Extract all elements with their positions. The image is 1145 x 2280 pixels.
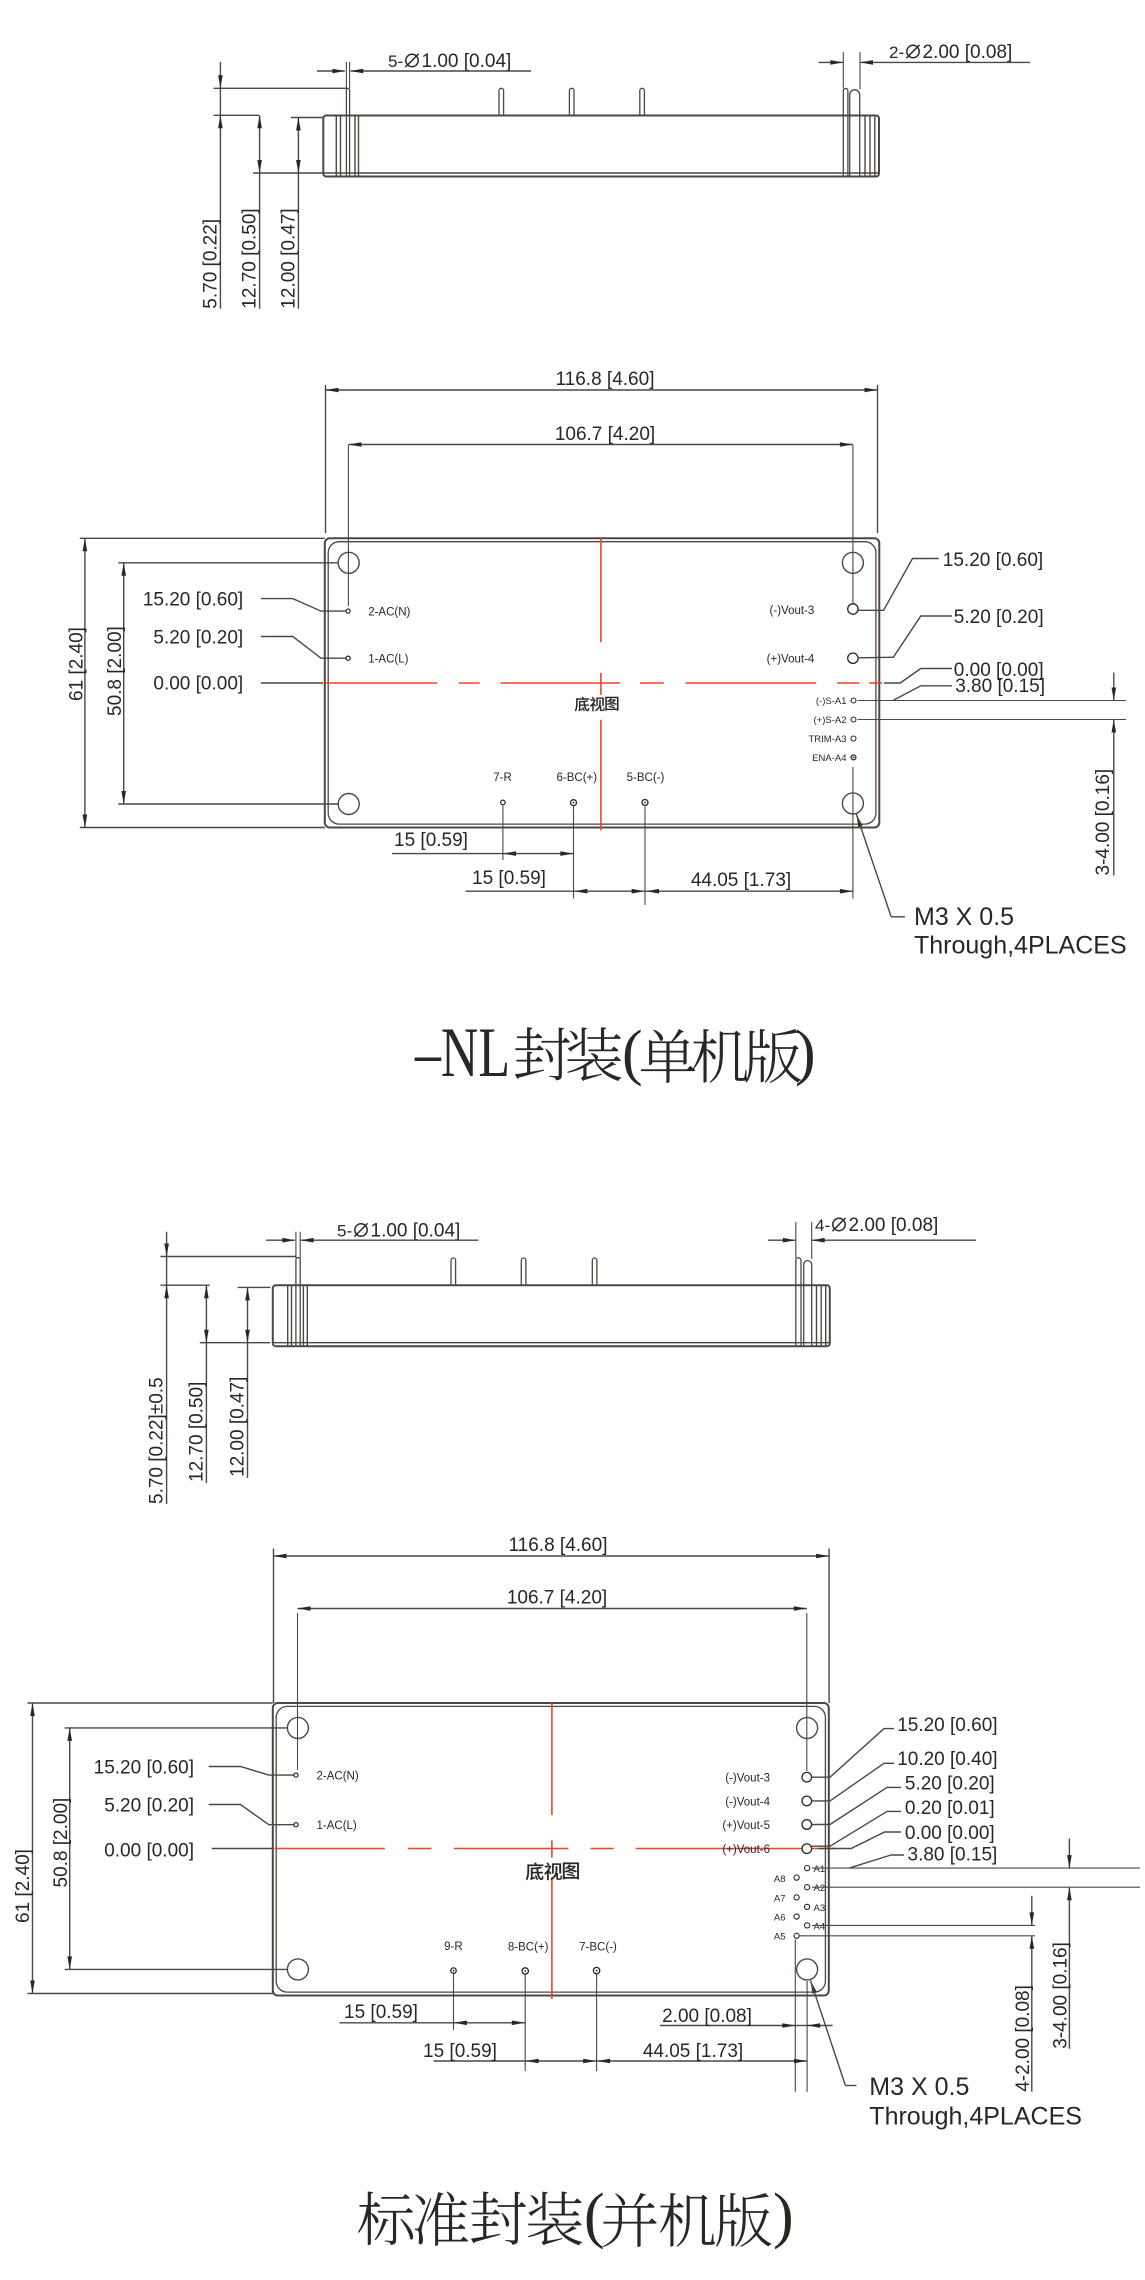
svg-text:106.7 [4.20]: 106.7 [4.20] [507,1588,607,1609]
svg-text:10.20 [0.40]: 10.20 [0.40] [897,1749,997,1770]
svg-text:): ) [773,2182,794,2250]
svg-text:2-AC(N): 2-AC(N) [317,1771,359,1783]
svg-text:7-BC(-): 7-BC(-) [579,1942,617,1954]
svg-text:A8: A8 [774,1874,786,1885]
svg-text:0.00 [0.00]: 0.00 [0.00] [905,1823,995,1844]
svg-text:2-AC(N): 2-AC(N) [368,607,410,619]
svg-text:Through,4PLACES: Through,4PLACES [869,2103,1082,2131]
svg-text:6-BC(+): 6-BC(+) [557,772,598,784]
svg-text:50.8 [2.00]: 50.8 [2.00] [105,626,126,716]
svg-text:5.20 [0.20]: 5.20 [0.20] [153,628,243,649]
svg-text:3.80 [0.15]: 3.80 [0.15] [908,1845,998,1866]
svg-text:4-: 4- [815,1216,830,1235]
svg-text:(-)Vout-3: (-)Vout-3 [770,605,815,617]
svg-text:M3 X 0.5: M3 X 0.5 [869,2073,969,2101]
svg-text:15.20 [0.60]: 15.20 [0.60] [143,590,243,611]
svg-text:15.20 [0.60]: 15.20 [0.60] [897,1715,997,1736]
svg-text:2.00 [0.08]: 2.00 [0.08] [662,2006,752,2027]
svg-text:5.20 [0.20]: 5.20 [0.20] [104,1796,194,1817]
svg-text:1-AC(L): 1-AC(L) [368,654,408,666]
svg-text:50.8 [2.00]: 50.8 [2.00] [51,1798,72,1888]
svg-text:–NL: –NL [414,1014,510,1092]
svg-text:5.70 [0.22]±0.5: 5.70 [0.22]±0.5 [147,1377,168,1504]
svg-text:M3 X 0.5: M3 X 0.5 [914,903,1014,931]
svg-text:44.05 [1.73]: 44.05 [1.73] [691,870,791,891]
svg-text:12.00 [0.47]: 12.00 [0.47] [278,208,299,308]
svg-text:12.70 [0.50]: 12.70 [0.50] [240,208,261,308]
svg-text:44.05 [1.73]: 44.05 [1.73] [643,2041,743,2062]
svg-text:(-)Vout-3: (-)Vout-3 [725,1773,770,1785]
svg-text:9-R: 9-R [444,1941,463,1953]
svg-text:A1: A1 [814,1864,826,1875]
svg-text:0.20 [0.01]: 0.20 [0.01] [905,1798,995,1819]
svg-text:(+)S-A2: (+)S-A2 [814,715,847,726]
svg-text:3-4.00 [0.16]: 3-4.00 [0.16] [1051,1942,1072,2049]
svg-text:5-BC(-): 5-BC(-) [627,772,665,784]
svg-text:5.20 [0.20]: 5.20 [0.20] [905,1774,995,1795]
svg-text:2.00 [0.08]: 2.00 [0.08] [849,1215,939,1236]
svg-text:1.00 [0.04]: 1.00 [0.04] [371,1221,461,1242]
svg-text:8-BC(+): 8-BC(+) [508,1942,549,1954]
svg-text:A4: A4 [814,1922,826,1933]
svg-text:0.00 [0.00]: 0.00 [0.00] [153,674,243,695]
svg-text:15 [0.59]: 15 [0.59] [423,2041,497,2062]
svg-text:1.00 [0.04]: 1.00 [0.04] [422,51,512,72]
svg-text:15 [0.59]: 15 [0.59] [394,830,468,851]
svg-text:3-4.00 [0.16]: 3-4.00 [0.16] [1093,769,1114,876]
svg-text:TRIM-A3: TRIM-A3 [809,734,847,745]
svg-text:A5: A5 [774,1932,786,1943]
svg-text:4-2.00 [0.08]: 4-2.00 [0.08] [1013,1985,1034,2092]
svg-text:A6: A6 [774,1913,786,1924]
svg-text:A3: A3 [814,1903,826,1914]
svg-text:5-: 5- [337,1222,352,1241]
svg-text:5.70 [0.22]: 5.70 [0.22] [200,219,221,309]
svg-text:ENA-A4: ENA-A4 [812,753,846,764]
svg-text:15 [0.59]: 15 [0.59] [344,2002,418,2023]
svg-text:12.00 [0.47]: 12.00 [0.47] [228,1377,249,1477]
svg-text:A2: A2 [814,1883,826,1894]
svg-text:5-: 5- [388,52,403,71]
svg-text:A7: A7 [774,1894,786,1905]
svg-text:7-R: 7-R [493,772,512,784]
svg-text:12.70 [0.50]: 12.70 [0.50] [186,1382,207,1482]
svg-text:15.20 [0.60]: 15.20 [0.60] [943,550,1043,571]
svg-text:Through,4PLACES: Through,4PLACES [914,932,1127,960]
svg-text:(-)S-A1: (-)S-A1 [816,696,847,707]
svg-text:(: ( [622,1019,643,1087]
svg-text:5.20 [0.20]: 5.20 [0.20] [954,607,1044,628]
svg-text:0.00 [0.00]: 0.00 [0.00] [104,1841,194,1862]
svg-text:(+)Vout-6: (+)Vout-6 [722,1844,770,1856]
svg-text:15.20 [0.60]: 15.20 [0.60] [94,1758,194,1779]
svg-text:(: ( [584,2182,605,2250]
svg-text:): ) [795,1019,816,1087]
svg-text:15 [0.59]: 15 [0.59] [472,868,546,889]
svg-text:61 [2.40]: 61 [2.40] [13,1849,34,1923]
svg-text:106.7 [4.20]: 106.7 [4.20] [555,424,655,445]
svg-text:2.00 [0.08]: 2.00 [0.08] [923,42,1013,63]
svg-text:(-)Vout-4: (-)Vout-4 [725,1796,770,1808]
svg-text:116.8 [4.60]: 116.8 [4.60] [556,369,655,390]
svg-text:3.80 [0.15]: 3.80 [0.15] [955,676,1045,697]
svg-text:61 [2.40]: 61 [2.40] [66,627,87,701]
svg-text:1-AC(L): 1-AC(L) [317,1820,357,1832]
svg-text:116.8 [4.60]: 116.8 [4.60] [509,1535,608,1556]
svg-text:(+)Vout-4: (+)Vout-4 [767,654,815,666]
svg-text:(+)Vout-5: (+)Vout-5 [722,1820,770,1832]
svg-text:2-: 2- [889,43,904,62]
